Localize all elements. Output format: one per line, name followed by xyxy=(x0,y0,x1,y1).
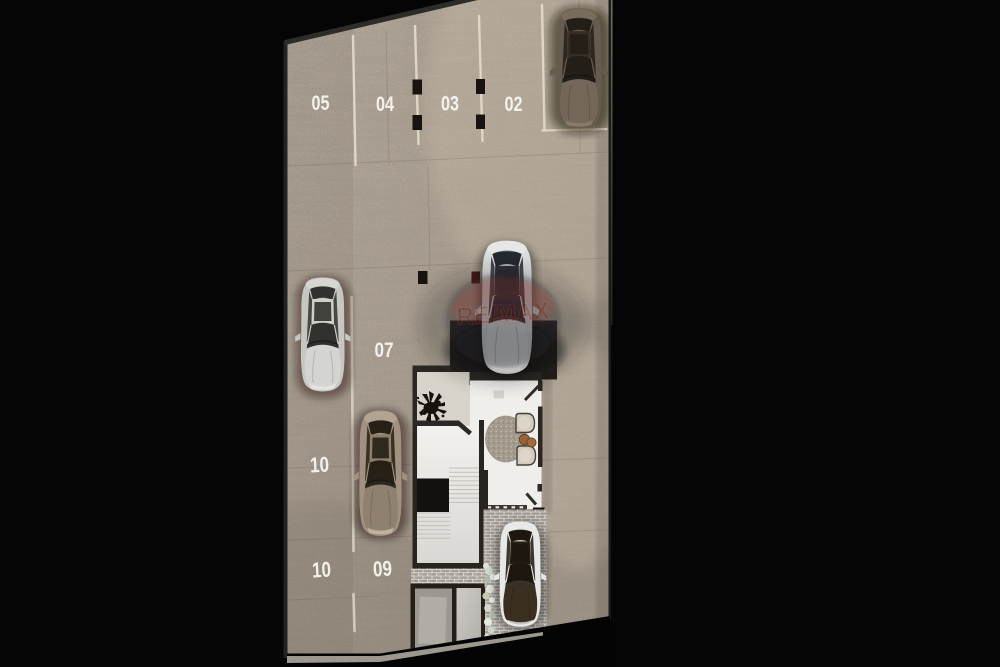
svg-text:10: 10 xyxy=(309,453,329,478)
svg-text:10: 10 xyxy=(311,558,331,583)
svg-text:04: 04 xyxy=(376,92,394,116)
svg-text:02: 02 xyxy=(505,92,523,116)
svg-text:07: 07 xyxy=(375,338,394,362)
svg-text:09: 09 xyxy=(372,557,392,582)
svg-text:05: 05 xyxy=(312,91,330,115)
svg-text:03: 03 xyxy=(441,92,459,116)
